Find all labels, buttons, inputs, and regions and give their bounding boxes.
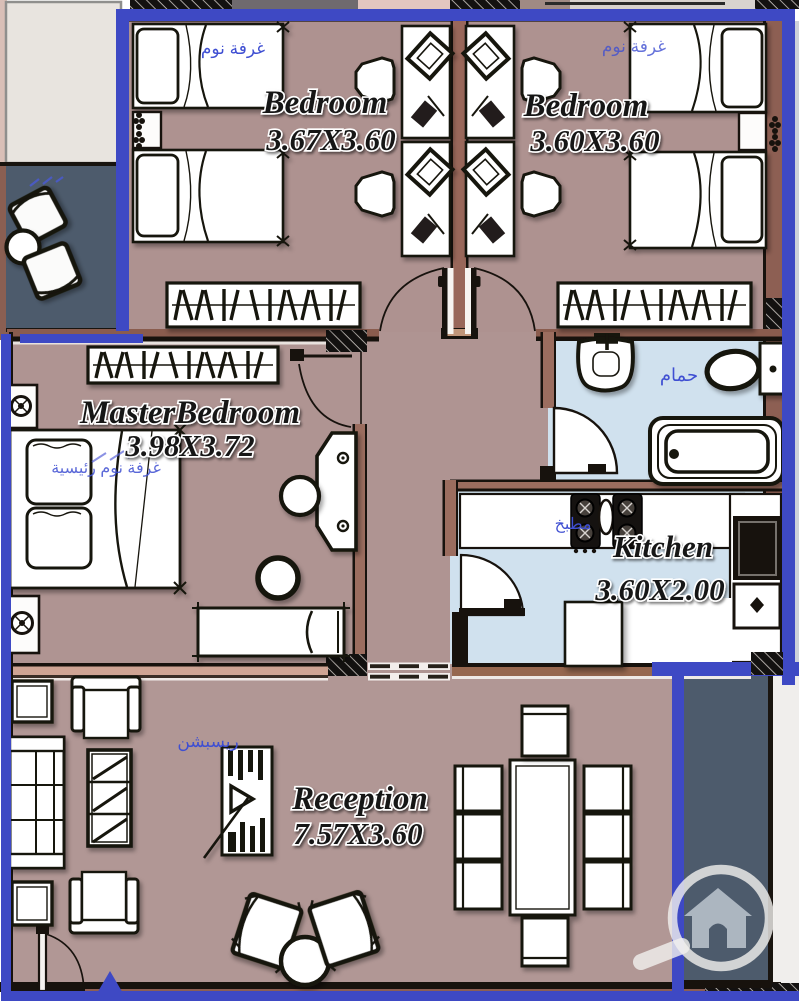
- svg-text:غرفة نوم: غرفة نوم: [201, 39, 265, 59]
- svg-text:غرفة نوم رئيسية: غرفة نوم رئيسية: [51, 460, 161, 477]
- svg-text:3.98X3.72: 3.98X3.72: [124, 428, 254, 463]
- svg-text:ريسبشن: ريسبشن: [177, 732, 238, 752]
- svg-text:Bedroom: Bedroom: [523, 88, 649, 124]
- svg-text:مطبخ: مطبخ: [555, 516, 592, 533]
- svg-text:3.60X3.60: 3.60X3.60: [529, 123, 659, 158]
- svg-text:3.67X3.60: 3.67X3.60: [265, 122, 395, 157]
- svg-text:حمام: حمام: [660, 365, 698, 386]
- svg-text:Kitchen: Kitchen: [612, 529, 713, 564]
- svg-text:Reception: Reception: [291, 781, 428, 817]
- svg-text:7.57X3.60: 7.57X3.60: [293, 816, 422, 851]
- svg-text:MasterBedroom: MasterBedroom: [79, 395, 300, 431]
- svg-text:Bedroom: Bedroom: [262, 85, 388, 121]
- svg-text:3.60X2.00: 3.60X2.00: [594, 572, 724, 607]
- svg-text:غرفة نوم: غرفة نوم: [602, 37, 666, 57]
